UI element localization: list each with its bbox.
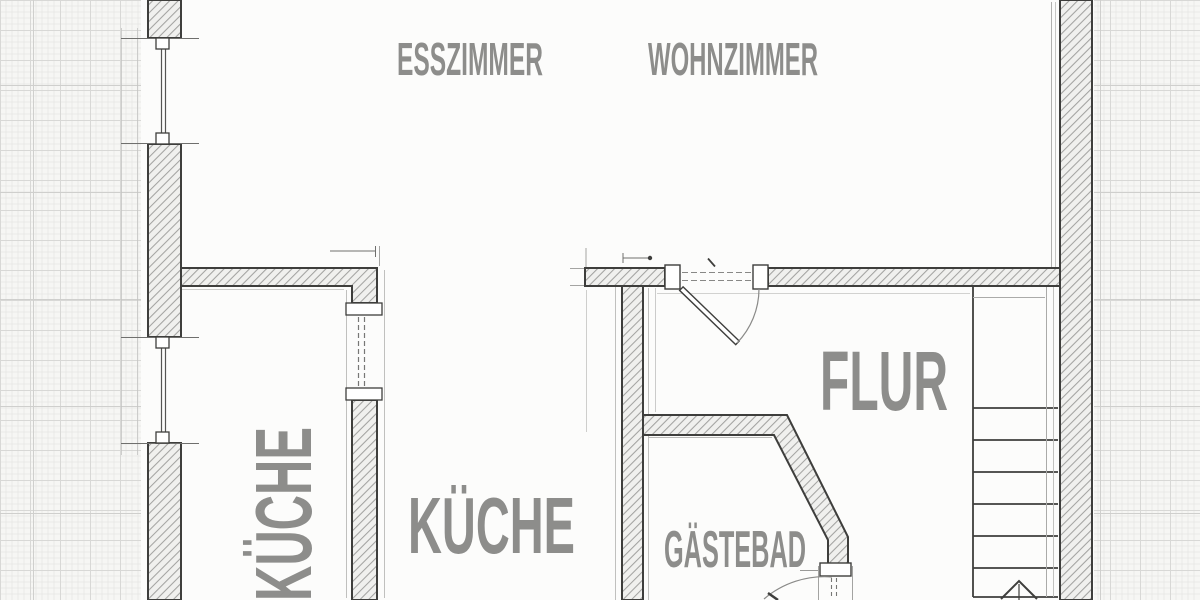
staircase — [973, 287, 1058, 600]
gaestebad-door-leaf — [768, 593, 778, 600]
room-label-esszimmer: ESSZIMMER — [397, 33, 543, 85]
floor-plan-canvas: ESSZIMMER WOHNZIMMER KÜCHE KÜCHE FLUR GÄ… — [0, 0, 1200, 600]
left-exterior-wall-middle — [148, 144, 181, 337]
left-exterior-wall-bottom — [148, 443, 181, 600]
entry-door-jamb-left — [665, 265, 680, 289]
room-label-kueche-vertical: KÜCHE — [239, 427, 328, 600]
right-exterior-wall — [1060, 0, 1092, 600]
entry-wall-left — [585, 268, 665, 286]
entry-wall-right — [768, 268, 1060, 286]
hall-divider-wall — [622, 286, 643, 600]
entry-door-jamb-right — [753, 265, 768, 289]
kitchen-pocket-door — [346, 303, 382, 400]
left-exterior-wall-top — [148, 0, 181, 38]
gaestebad-door-swing-arc — [764, 577, 832, 599]
entry-door-leaf — [680, 287, 740, 345]
gaestebad-door-jamb — [820, 563, 851, 576]
floor-plan-page: ESSZIMMER WOHNZIMMER KÜCHE KÜCHE FLUR GÄ… — [0, 0, 1200, 600]
room-label-flur: FLUR — [820, 334, 948, 428]
room-label-gaestebad: GÄSTEBAD — [664, 521, 806, 579]
graph-paper-left — [0, 0, 141, 600]
room-label-wohnzimmer: WOHNZIMMER — [648, 33, 818, 85]
kitchen-lower-wall — [352, 400, 377, 600]
entry-door — [665, 265, 768, 345]
kitchen-corner-wall — [181, 268, 377, 303]
room-labels: ESSZIMMER WOHNZIMMER KÜCHE KÜCHE FLUR GÄ… — [239, 33, 948, 600]
entry-door-swing-arc — [737, 289, 759, 343]
graph-paper-right — [1094, 0, 1200, 600]
room-label-kueche: KÜCHE — [408, 481, 575, 570]
